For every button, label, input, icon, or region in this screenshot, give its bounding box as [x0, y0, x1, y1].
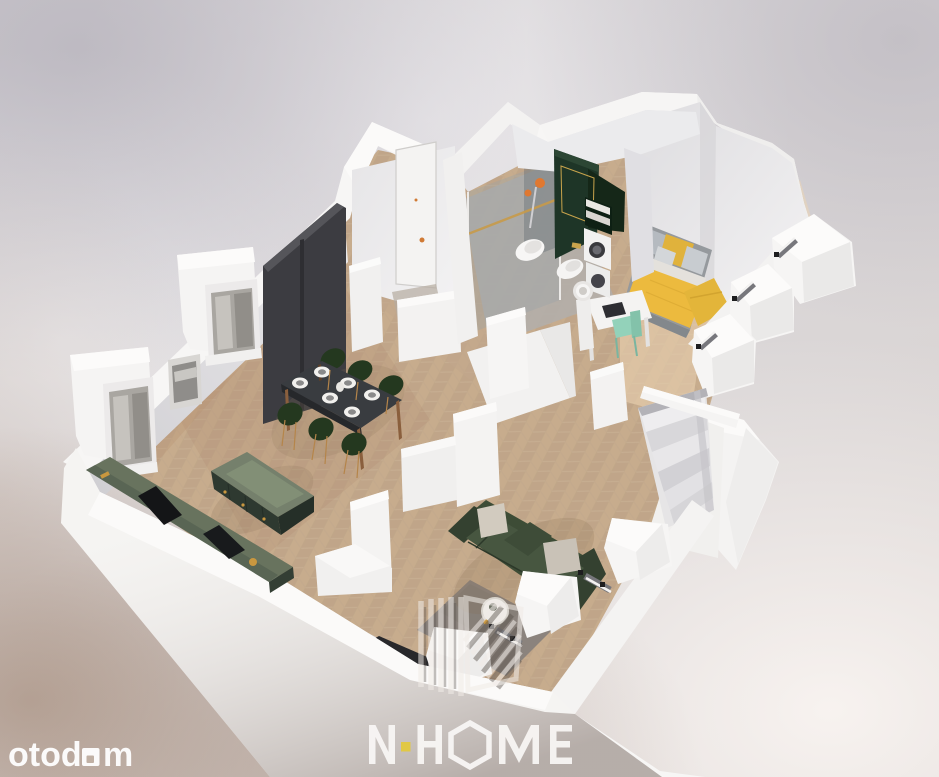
svg-text:m: m [103, 736, 133, 774]
svg-text:otod: otod [8, 736, 82, 774]
